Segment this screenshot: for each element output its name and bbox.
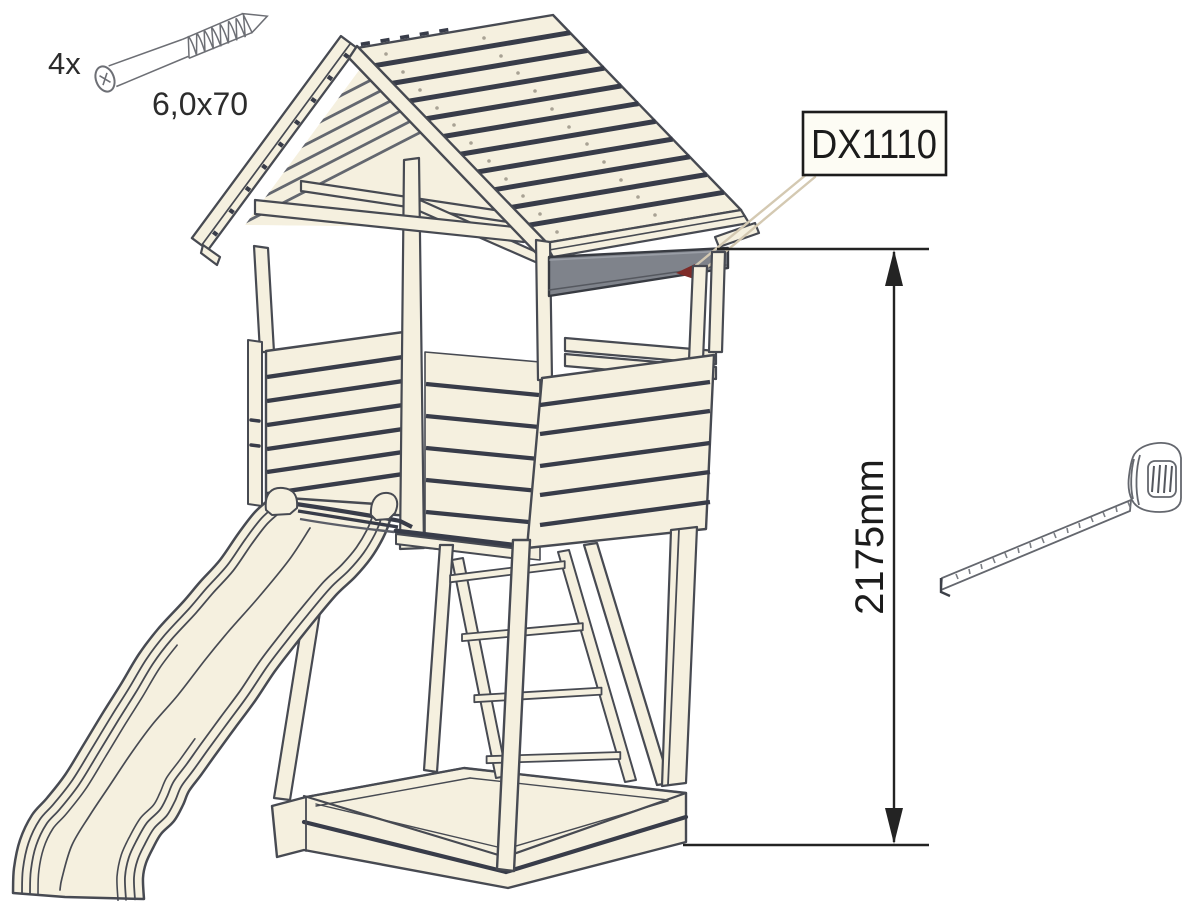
svg-text:2175mm: 2175mm bbox=[848, 459, 892, 615]
svg-text:DX1110: DX1110 bbox=[811, 121, 937, 167]
svg-text:6,0x70: 6,0x70 bbox=[152, 86, 248, 122]
svg-text:4x: 4x bbox=[48, 46, 81, 81]
